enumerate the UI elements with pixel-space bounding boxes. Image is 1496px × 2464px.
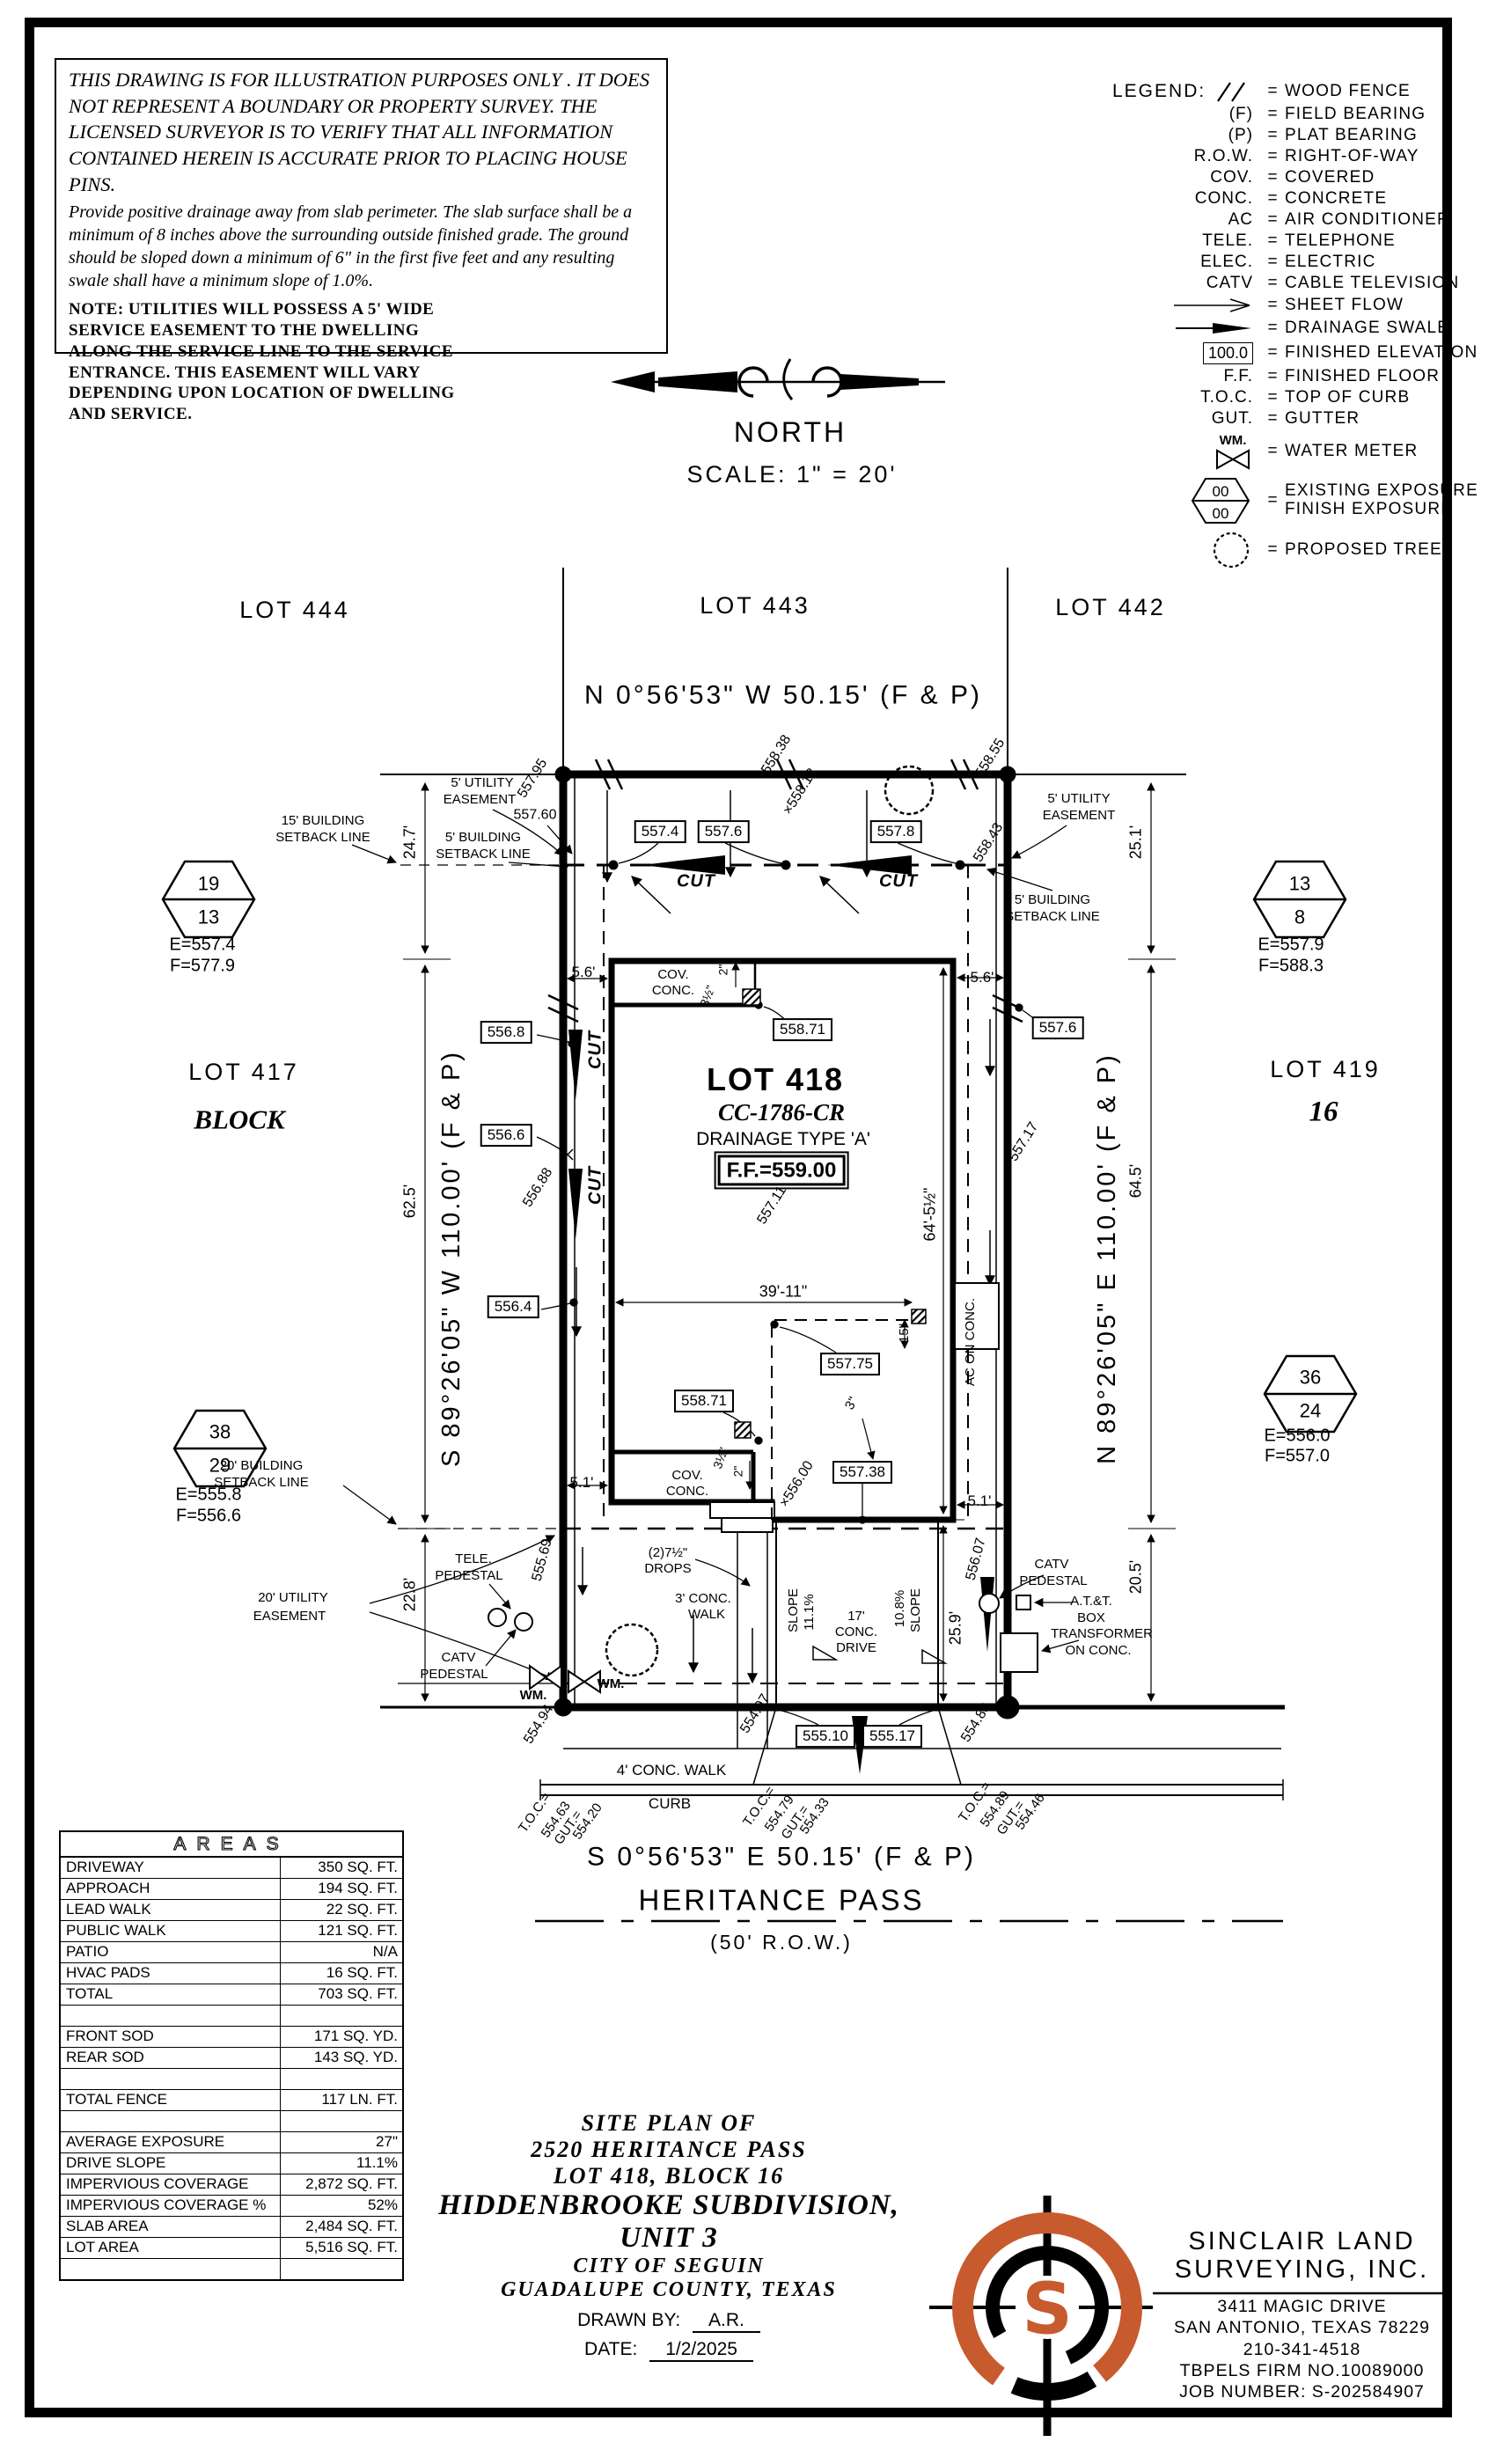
- legend-description: COVERED: [1285, 169, 1375, 187]
- sheet-flow-icon: [1172, 297, 1253, 313]
- plan-label: COV.: [657, 968, 688, 982]
- plan-label: 5.1': [968, 1493, 992, 1509]
- date-row: DATE: 1/2/2025: [405, 2339, 933, 2360]
- legend-row: CATV=CABLE TELEVISION: [1137, 273, 1489, 294]
- areas-row-value: 5,516 SQ. FT.: [281, 2238, 402, 2258]
- title-line: SITE PLAN OF: [405, 2110, 933, 2137]
- plan-label: 2": [732, 1466, 745, 1478]
- areas-row-label: IMPERVIOUS COVERAGE: [61, 2174, 281, 2195]
- plan-label: 24: [1300, 1400, 1321, 1420]
- elevation-label: 557.75: [820, 1353, 880, 1375]
- plan-label: TELE.: [455, 1552, 492, 1566]
- plan-label: CATV: [1035, 1558, 1069, 1572]
- plan-label: (2)7½": [649, 1546, 688, 1560]
- areas-table-row: LOT AREA5,516 SQ. FT.: [61, 2238, 402, 2259]
- plan-label: 3' CONC.: [675, 1592, 731, 1606]
- company-name: SINCLAIR LAND: [1155, 2228, 1449, 2256]
- areas-row-label: [61, 2259, 281, 2279]
- areas-table-row: [61, 2111, 402, 2132]
- legend-description: CABLE TELEVISION: [1285, 275, 1459, 293]
- logo-letter: S: [1022, 2269, 1073, 2350]
- company-phone: 210-341-4518: [1155, 2340, 1449, 2359]
- elevation-label: 557.8: [870, 820, 922, 843]
- plan-label: SETBACK LINE: [1005, 910, 1100, 924]
- legend-description: CONCRETE: [1285, 190, 1387, 209]
- plan-label: 38: [209, 1421, 231, 1441]
- company-firm-no: TBPELS FIRM NO.10089000: [1155, 2361, 1449, 2380]
- areas-row-label: [61, 2006, 281, 2026]
- plan-label: 5' BUILDING: [1015, 893, 1090, 907]
- plan-label: E=557.9: [1258, 936, 1324, 955]
- plan-label: 20' UTILITY: [258, 1591, 328, 1605]
- disclaimer-box: THIS DRAWING IS FOR ILLUSTRATION PURPOSE…: [55, 58, 668, 354]
- areas-row-value: 52%: [281, 2196, 402, 2216]
- title-subdivision: HIDDENBROOKE SUBDIVISION,: [405, 2189, 933, 2222]
- areas-row-label: HVAC PADS: [61, 1963, 281, 1984]
- plan-label: NORTH: [734, 418, 847, 448]
- plan-label: EASEMENT: [1043, 809, 1116, 823]
- areas-row-value: 194 SQ. FT.: [281, 1879, 402, 1899]
- house-footprint: [612, 961, 999, 1532]
- plan-label: 5' UTILITY: [451, 776, 513, 790]
- plan-label: 13: [198, 906, 219, 927]
- areas-table-row: TOTAL FENCE117 LN. FT.: [61, 2090, 402, 2111]
- areas-row-value: 143 SQ. YD.: [281, 2048, 402, 2068]
- legend-description: PROPOSED TREE: [1285, 541, 1442, 560]
- areas-table-row: [61, 2259, 402, 2279]
- plan-label: TRANSFORMER: [1051, 1627, 1153, 1641]
- finished-elevation-icon: 100.0: [1203, 342, 1253, 364]
- plan-label: N 89°26'05" E 110.00' (F & P): [1094, 1052, 1120, 1464]
- areas-table-row: REAR SOD143 SQ. YD.: [61, 2048, 402, 2069]
- utilities-note: NOTE: UTILITIES WILL POSSESS A 5' WIDE S…: [69, 299, 473, 425]
- plan-label: 19: [198, 873, 219, 893]
- plan-label: CC-1786-CR: [718, 1100, 845, 1125]
- company-name: SURVEYING, INC.: [1155, 2256, 1449, 2284]
- drainage-swale-icon: [1172, 320, 1253, 336]
- legend-description: TOP OF CURB: [1285, 389, 1410, 407]
- legend-row: R.O.W.=RIGHT-OF-WAY: [1137, 146, 1489, 167]
- elevation-label: 557.6: [698, 820, 750, 843]
- plan-label: F=588.3: [1258, 957, 1324, 976]
- elevation-label: 557.38: [832, 1461, 892, 1484]
- legend-description: GUTTER: [1285, 410, 1360, 429]
- plan-label: PEDESTAL: [435, 1569, 502, 1583]
- catv-pedestal-symbol: [515, 1613, 532, 1631]
- plan-label: S 0°56'53" E 50.15' (F & P): [587, 1843, 976, 1871]
- areas-row-value: N/A: [281, 1942, 402, 1962]
- areas-table-row: APPROACH194 SQ. FT.: [61, 1879, 402, 1900]
- areas-row-value: 703 SQ. FT.: [281, 1984, 402, 2005]
- drawn-by-label: DRAWN BY:: [577, 2310, 680, 2330]
- areas-table-row: [61, 2006, 402, 2027]
- elevation-label: 556.6: [480, 1124, 532, 1147]
- legend-row: =SHEET FLOW: [1137, 294, 1489, 317]
- legend-description: FINISHED FLOOR: [1285, 368, 1440, 386]
- elevation-label: 555.10: [796, 1725, 855, 1748]
- plan-label: 22.8': [402, 1578, 419, 1611]
- plan-label: AC ON CONC.: [964, 1298, 978, 1386]
- legend-description: ELECTRIC: [1285, 253, 1376, 272]
- areas-table-row: FRONT SOD171 SQ. YD.: [61, 2027, 402, 2048]
- plan-label: 25.9': [948, 1611, 964, 1645]
- legend: LEGEND: =WOOD FENCE(F)=FIELD BEARING(P)=…: [1137, 79, 1489, 572]
- areas-row-value: 171 SQ. YD.: [281, 2027, 402, 2047]
- areas-row-value: 350 SQ. FT.: [281, 1858, 402, 1878]
- areas-row-label: APPROACH: [61, 1879, 281, 1899]
- areas-row-value: 2,872 SQ. FT.: [281, 2174, 402, 2195]
- areas-table: AREAS DRIVEWAY350 SQ. FT.APPROACH194 SQ.…: [59, 1830, 404, 2281]
- wood-fence-icon: [1211, 80, 1253, 103]
- svg-text:00: 00: [1213, 483, 1229, 500]
- company-block: SINCLAIR LAND SURVEYING, INC. 3411 MAGIC…: [1155, 2228, 1449, 2402]
- plan-label: DROPS: [644, 1562, 691, 1576]
- plan-label: BOX: [1077, 1611, 1105, 1625]
- elevation-label: 555.17: [862, 1725, 922, 1748]
- areas-row-label: PATIO: [61, 1942, 281, 1962]
- plan-label: 25.1': [1128, 825, 1145, 859]
- legend-row: 100.0=FINISHED ELEVATION: [1137, 340, 1489, 366]
- plan-label: EASEMENT: [444, 793, 517, 807]
- plan-label: SETBACK LINE: [275, 831, 370, 845]
- plan-label: CUT: [879, 873, 918, 891]
- plan-label: WM.: [520, 1689, 547, 1703]
- exposure-hexagon-icon: 0000: [1188, 473, 1253, 528]
- areas-table-row: PATION/A: [61, 1942, 402, 1963]
- areas-row-value: 2,484 SQ. FT.: [281, 2217, 402, 2237]
- areas-table-row: [61, 2069, 402, 2090]
- plan-label: F=577.9: [170, 957, 235, 976]
- plan-label: CATV: [442, 1651, 476, 1665]
- areas-row-value: [281, 2069, 402, 2089]
- areas-row-label: AVERAGE EXPOSURE: [61, 2132, 281, 2152]
- areas-table-row: IMPERVIOUS COVERAGE2,872 SQ. FT.: [61, 2174, 402, 2196]
- legend-description: AIR CONDITIONER: [1285, 211, 1450, 230]
- drawn-by-value: A.R.: [693, 2310, 760, 2333]
- plan-label: CONC.: [666, 1485, 708, 1499]
- areas-row-label: TOTAL: [61, 1984, 281, 2005]
- plan-label: HERITANCE PASS: [639, 1886, 925, 1917]
- areas-row-label: DRIVEWAY: [61, 1858, 281, 1878]
- elevation-label: F.F.=559.00: [718, 1155, 846, 1185]
- legend-row: 0000=EXISTING EXPOSURE FINISH EXPOSURE: [1137, 473, 1489, 528]
- areas-row-label: [61, 2111, 281, 2131]
- plan-label: 64'-5½": [922, 1188, 939, 1242]
- plan-label: 29: [209, 1455, 231, 1475]
- plan-label: 5' BUILDING: [445, 831, 521, 845]
- plan-label: 8: [1294, 906, 1305, 927]
- legend-description: WOOD FENCE: [1285, 83, 1411, 101]
- plan-label: 62.5': [402, 1184, 419, 1218]
- plan-label: PEDESTAL: [420, 1668, 488, 1682]
- areas-table-title: AREAS: [61, 1832, 402, 1858]
- legend-description: DRAINAGE SWALE: [1285, 319, 1449, 338]
- proposed-tree: [606, 1624, 657, 1676]
- legend-row: ELEC.=ELECTRIC: [1137, 252, 1489, 273]
- areas-row-label: DRIVE SLOPE: [61, 2153, 281, 2174]
- plan-label: SLOPE: [787, 1588, 801, 1632]
- site-plan-sheet: THIS DRAWING IS FOR ILLUSTRATION PURPOSE…: [0, 0, 1496, 2464]
- plan-label: LOT 443: [700, 593, 810, 618]
- title-block: SITE PLAN OF 2520 HERITANCE PASS LOT 418…: [405, 2110, 933, 2360]
- plan-label: 5.6': [971, 970, 994, 986]
- areas-row-label: LOT AREA: [61, 2238, 281, 2258]
- title-county: GUADALUPE COUNTY, TEXAS: [405, 2278, 933, 2302]
- legend-row: AC=AIR CONDITIONER: [1137, 209, 1489, 231]
- plan-label: 10.8%: [893, 1590, 907, 1628]
- elevation-label: 557.6: [1032, 1016, 1084, 1039]
- legend-description: RIGHT-OF-WAY: [1285, 148, 1419, 166]
- elevation-label: 556.4: [488, 1295, 539, 1318]
- title-address: 2520 HERITANCE PASS: [405, 2137, 933, 2163]
- proposed-tree-icon: [1209, 528, 1253, 572]
- areas-row-value: 22 SQ. FT.: [281, 1900, 402, 1920]
- drawn-by-row: DRAWN BY: A.R.: [405, 2310, 933, 2331]
- plan-label: 2": [717, 964, 730, 976]
- legend-description: FINISHED ELEVATION: [1285, 344, 1478, 363]
- plan-label: E=555.8: [175, 1486, 241, 1505]
- plan-label: 36: [1300, 1367, 1321, 1387]
- areas-row-value: 121 SQ. FT.: [281, 1921, 402, 1941]
- plan-label: N 0°56'53" W 50.15' (F & P): [584, 681, 982, 709]
- legend-description: FIELD BEARING: [1285, 106, 1426, 124]
- plan-label: LOT 444: [239, 598, 350, 622]
- plan-label: 11.1%: [803, 1594, 817, 1630]
- areas-row-value: 16 SQ. FT.: [281, 1963, 402, 1984]
- legend-row: COV.=COVERED: [1137, 167, 1489, 188]
- areas-row-label: SLAB AREA: [61, 2217, 281, 2237]
- elevation-label: 558.71: [674, 1390, 734, 1412]
- legend-row: =DRAINAGE SWALE: [1137, 317, 1489, 340]
- areas-table-row: HVAC PADS16 SQ. FT.: [61, 1963, 402, 1984]
- areas-row-label: PUBLIC WALK: [61, 1921, 281, 1941]
- north-arrow-ornament: [611, 359, 945, 400]
- plan-label: CONC.: [652, 984, 694, 998]
- plan-label: LOT 418: [707, 1063, 844, 1096]
- areas-row-value: 27": [281, 2132, 402, 2152]
- legend-description: TELEPHONE: [1285, 232, 1396, 251]
- plan-label: CUT: [587, 1030, 605, 1069]
- company-job-number: JOB NUMBER: S-202584907: [1155, 2382, 1449, 2402]
- legend-row: CONC.=CONCRETE: [1137, 188, 1489, 209]
- title-unit: UNIT 3: [405, 2222, 933, 2255]
- areas-row-label: [61, 2069, 281, 2089]
- elevation-label: 558.71: [773, 1018, 832, 1041]
- legend-row: T.O.C.=TOP OF CURB: [1137, 387, 1489, 408]
- legend-row: (F)=FIELD BEARING: [1137, 104, 1489, 125]
- plan-label: LOT 442: [1055, 595, 1166, 620]
- plan-label: SCALE: 1" = 20': [686, 462, 897, 487]
- plan-label: 557.60: [514, 809, 557, 824]
- plan-label: SETBACK LINE: [436, 847, 531, 862]
- plan-label: DRAINAGE TYPE 'A': [696, 1130, 870, 1149]
- plan-label: 5.6': [572, 964, 596, 980]
- plan-label: CUT: [677, 873, 715, 891]
- legend-row: F.F.=FINISHED FLOOR: [1137, 366, 1489, 387]
- legend-description: EXISTING EXPOSURE FINISH EXPOSURE: [1285, 482, 1478, 519]
- plan-label: WM.: [598, 1677, 625, 1691]
- plan-label: 20.5': [1128, 1560, 1145, 1594]
- areas-row-value: [281, 2259, 402, 2279]
- plan-label: 16: [1309, 1097, 1338, 1128]
- disclaimer-text: THIS DRAWING IS FOR ILLUSTRATION PURPOSE…: [69, 67, 654, 197]
- setback-easement-lines: [398, 774, 1008, 1707]
- plan-label: EASEMENT: [253, 1610, 326, 1624]
- plan-label: BLOCK: [194, 1106, 284, 1135]
- water-meter-symbol: [530, 1666, 561, 1689]
- plan-label: CONC.: [835, 1625, 877, 1639]
- catv-pedestal-symbol-right: [979, 1594, 999, 1613]
- plan-label: 24.7': [402, 825, 419, 859]
- date-value: 1/2/2025: [649, 2339, 753, 2362]
- legend-description: WATER METER: [1285, 443, 1418, 461]
- legend-description: PLAT BEARING: [1285, 127, 1418, 145]
- water-meter-symbol: [568, 1671, 600, 1692]
- legend-row: (P)=PLAT BEARING: [1137, 125, 1489, 146]
- areas-row-value: 117 LN. FT.: [281, 2090, 402, 2110]
- plan-label: 13: [1289, 873, 1310, 893]
- plan-label: ON CONC.: [1066, 1644, 1132, 1658]
- areas-table-row: SLAB AREA2,484 SQ. FT.: [61, 2217, 402, 2238]
- plan-label: DRIVE: [836, 1641, 876, 1655]
- plan-label: 15' BUILDING: [282, 814, 365, 828]
- date-label: DATE:: [584, 2339, 637, 2359]
- plan-label: F=556.6: [176, 1507, 241, 1526]
- legend-row: TELE.=TELEPHONE: [1137, 231, 1489, 252]
- company-city: SAN ANTONIO, TEXAS 78229: [1155, 2318, 1449, 2337]
- plan-label: E=556.0: [1264, 1427, 1330, 1446]
- areas-table-row: DRIVEWAY350 SQ. FT.: [61, 1858, 402, 1879]
- title-city: CITY OF SEGUIN: [405, 2255, 933, 2278]
- plan-label: COV.: [671, 1469, 702, 1483]
- areas-row-label: LEAD WALK: [61, 1900, 281, 1920]
- plan-label: A.T.&T.: [1070, 1595, 1112, 1609]
- plan-label: CURB: [649, 1796, 691, 1812]
- areas-row-label: IMPERVIOUS COVERAGE %: [61, 2196, 281, 2216]
- plan-label: LOT 417: [188, 1060, 299, 1084]
- att-box-symbol: [1016, 1595, 1030, 1610]
- svg-text:00: 00: [1213, 505, 1229, 522]
- elevation-label: 557.4: [634, 820, 686, 843]
- plan-label: CUT: [587, 1166, 605, 1205]
- tele-pedestal-symbol: [488, 1609, 506, 1626]
- drainage-note: Provide positive drainage away from slab…: [69, 201, 654, 292]
- areas-table-row: PUBLIC WALK121 SQ. FT.: [61, 1921, 402, 1942]
- plan-label: SLOPE: [909, 1588, 923, 1632]
- title-lot-block: LOT 418, BLOCK 16: [405, 2163, 933, 2189]
- transformer-symbol: [1001, 1633, 1038, 1672]
- plan-label: S 89°26'05" W 110.00' (F & P): [438, 1050, 465, 1467]
- areas-row-value: [281, 2111, 402, 2131]
- plan-label: 4' CONC. WALK: [617, 1763, 726, 1778]
- areas-table-row: IMPERVIOUS COVERAGE %52%: [61, 2196, 402, 2217]
- areas-row-label: FRONT SOD: [61, 2027, 281, 2047]
- plan-label: 5' UTILITY: [1047, 792, 1110, 806]
- legend-row: =PROPOSED TREE: [1137, 528, 1489, 572]
- water-meter-icon: WM.: [1213, 433, 1253, 471]
- plan-label: 17': [847, 1610, 865, 1624]
- plan-label: 39'-11": [759, 1284, 808, 1301]
- areas-table-row: LEAD WALK22 SQ. FT.: [61, 1900, 402, 1921]
- areas-table-row: AVERAGE EXPOSURE27": [61, 2132, 402, 2153]
- plan-label: E=557.4: [169, 936, 235, 955]
- company-address: 3411 MAGIC DRIVE: [1155, 2297, 1449, 2316]
- legend-row: GUT.=GUTTER: [1137, 408, 1489, 429]
- areas-table-row: DRIVE SLOPE11.1%: [61, 2153, 402, 2174]
- elevation-label: 556.8: [480, 1021, 532, 1044]
- plan-label: PEDESTAL: [1019, 1574, 1087, 1588]
- plan-label: 15": [898, 1324, 912, 1343]
- plan-label: (50' R.O.W.): [710, 1932, 853, 1953]
- areas-row-value: 11.1%: [281, 2153, 402, 2174]
- plan-label: 5.1': [570, 1475, 594, 1491]
- areas-table-row: TOTAL703 SQ. FT.: [61, 1984, 402, 2006]
- legend-row: WM.=WATER METER: [1137, 429, 1489, 473]
- plan-label: 64.5': [1128, 1164, 1145, 1198]
- plan-label: LOT 419: [1270, 1057, 1381, 1082]
- areas-row-value: [281, 2006, 402, 2026]
- legend-description: SHEET FLOW: [1285, 297, 1404, 315]
- legend-title: LEGEND:: [1112, 81, 1206, 102]
- plan-label: 20' BUILDING: [220, 1459, 304, 1473]
- plan-label: F=557.0: [1265, 1448, 1330, 1466]
- plan-label: WALK: [688, 1608, 725, 1622]
- areas-row-label: TOTAL FENCE: [61, 2090, 281, 2110]
- areas-row-label: REAR SOD: [61, 2048, 281, 2068]
